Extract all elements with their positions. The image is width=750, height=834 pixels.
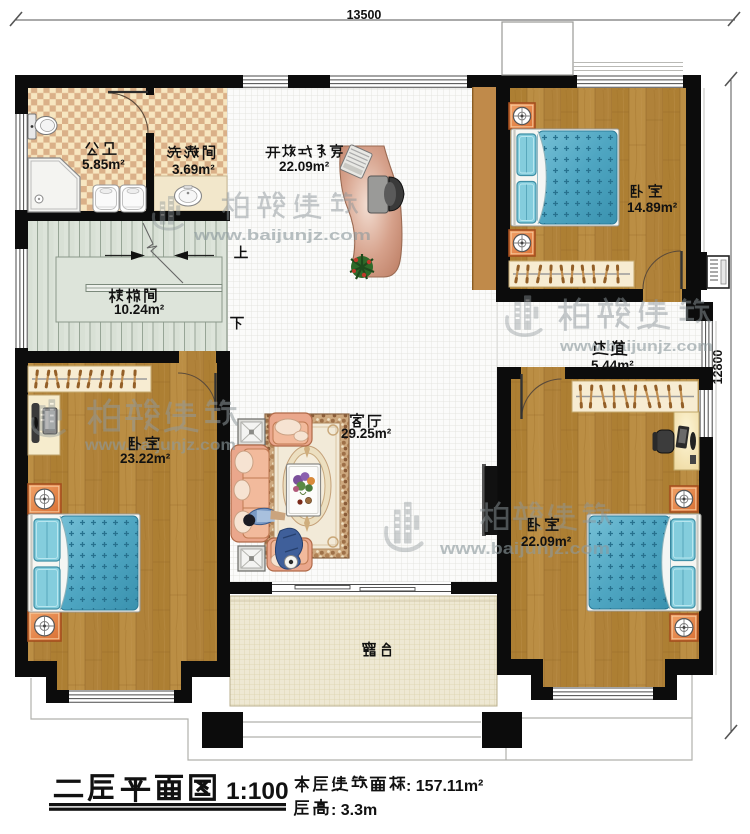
svg-text:23.22m²: 23.22m² <box>120 451 171 466</box>
svg-text:3.69m²: 3.69m² <box>172 162 215 177</box>
svg-text:12800: 12800 <box>711 350 725 385</box>
svg-text:13500: 13500 <box>347 8 382 22</box>
svg-text:: 157.11m²: : 157.11m² <box>406 778 483 795</box>
svg-text:22.09m²: 22.09m² <box>521 534 572 549</box>
svg-text:www.baijunjz.com: www.baijunjz.com <box>193 227 371 244</box>
svg-text:22.09m²: 22.09m² <box>279 159 330 174</box>
svg-text:5.44m²: 5.44m² <box>591 358 634 373</box>
svg-text:29.25m²: 29.25m² <box>341 426 392 441</box>
svg-text:: 3.3m: : 3.3m <box>331 802 377 819</box>
svg-text:5.85m²: 5.85m² <box>82 157 125 172</box>
svg-text:www.baijunjz.com: www.baijunjz.com <box>559 338 713 355</box>
svg-text:10.24m²: 10.24m² <box>114 302 165 317</box>
svg-text:1:100: 1:100 <box>226 778 289 805</box>
svg-text:14.89m²: 14.89m² <box>627 200 678 215</box>
